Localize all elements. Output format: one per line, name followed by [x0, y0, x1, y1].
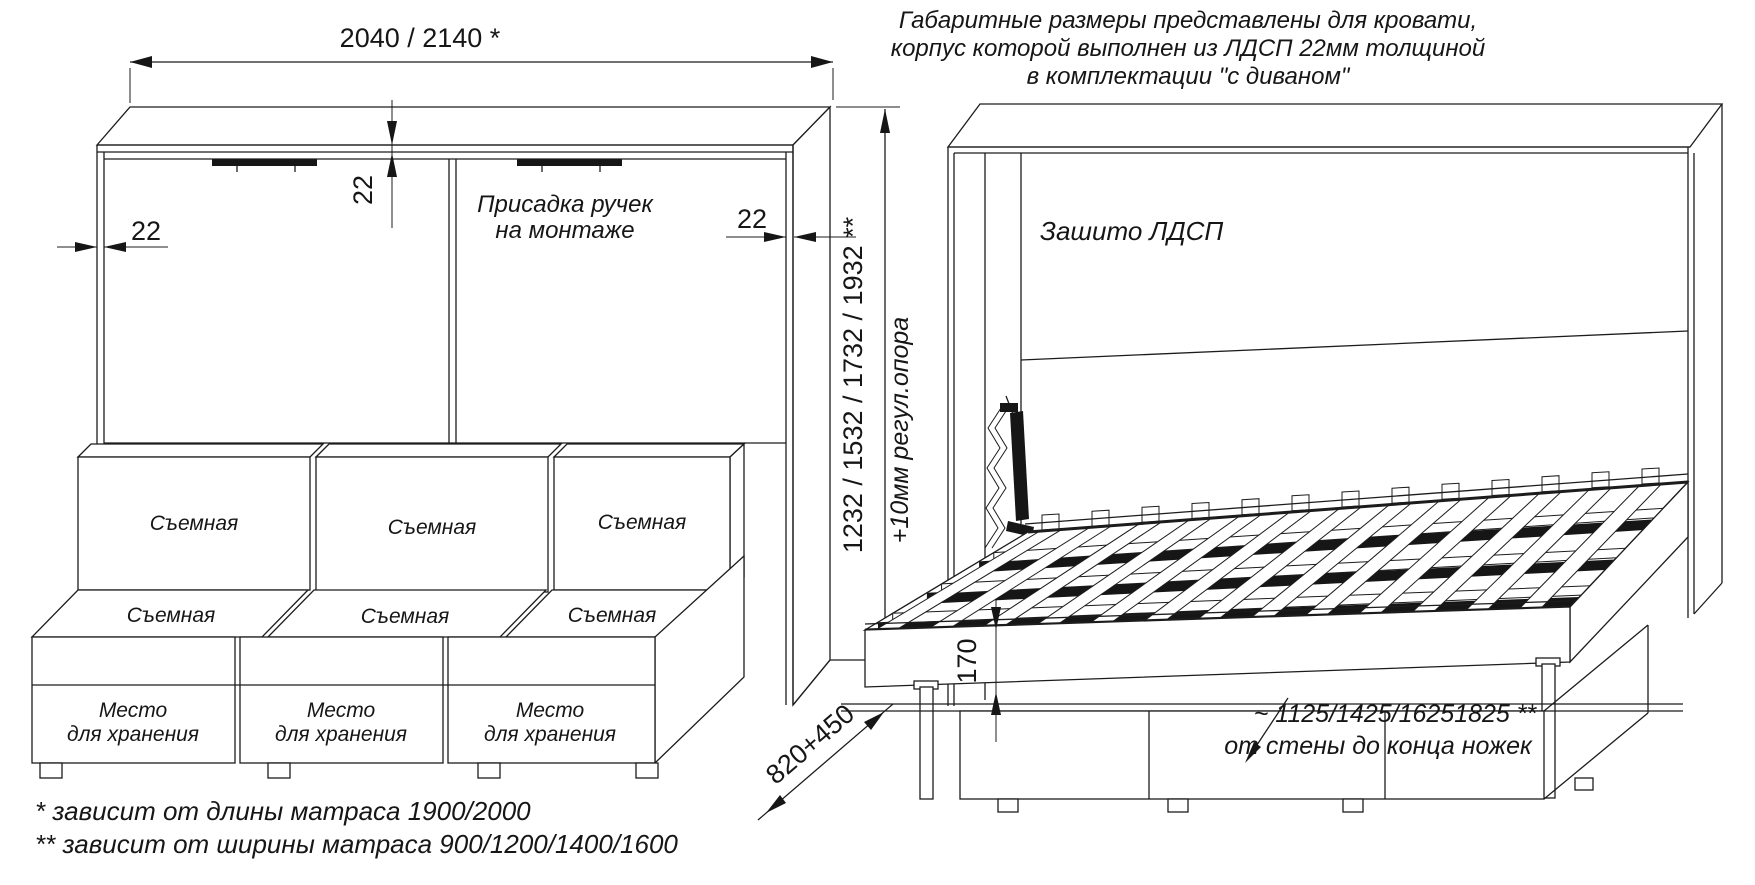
technical-drawing-canvas: Съемная Съемная Съемная Съемная Съемная … — [0, 0, 1755, 885]
storage-label-line1: Место — [307, 699, 376, 722]
sofa-foot — [636, 763, 658, 778]
depth-dimension-label: 820+450 — [760, 698, 860, 790]
closed-bed-sofa-view: Съемная Съемная Съемная Съемная Съемная … — [32, 23, 914, 820]
sofa-foot — [268, 763, 290, 778]
storage-label-line1: Место — [516, 699, 585, 722]
open-bed-view: Зашито ЛДСП — [841, 7, 1722, 812]
thickness-label: 22 — [131, 216, 161, 246]
dim-arrow — [864, 712, 884, 730]
note-line3: в комплектации "с диваном" — [1027, 63, 1351, 90]
dim-arrow — [880, 109, 890, 133]
footnote-1: * зависит от длины матраса 1900/2000 — [35, 796, 531, 826]
base-foot — [1343, 799, 1363, 812]
gas-lift-top-mount — [1000, 403, 1018, 412]
depth-dimension: 820+450 — [758, 698, 893, 820]
dim-arrow — [104, 242, 126, 252]
gas-lift-mechanism — [985, 396, 1034, 548]
height-note-label: +10мм регул.опора — [886, 317, 914, 544]
sofa-seat-cushions: Съемная Съемная Съемная — [32, 590, 730, 637]
door-handle-left — [212, 159, 317, 166]
general-note: Габаритные размеры представлены для кров… — [891, 7, 1485, 90]
bed-platform — [865, 468, 1688, 687]
cabinet-right-side-face — [793, 107, 830, 705]
furniture-drawing-page: Съемная Съемная Съемная Съемная Съемная … — [0, 0, 1755, 885]
cushion-label: Съемная — [388, 516, 477, 539]
base-foot — [1168, 799, 1188, 812]
storage-label-line2: для хранения — [484, 723, 616, 746]
thickness-label: 22 — [348, 175, 378, 205]
right-panel-thickness-dimension: 22 — [726, 204, 856, 242]
storage-label-line2: для хранения — [275, 723, 407, 746]
cushion-label: Съемная — [361, 605, 450, 628]
cushion-label: Съемная — [598, 511, 687, 534]
back-panel-joint-line — [1021, 331, 1688, 360]
base-foot — [1575, 778, 1593, 790]
storage-label-line1: Место — [99, 699, 168, 722]
dim-arrow — [387, 153, 397, 177]
sofa-foot — [478, 763, 500, 778]
cushion-label: Съемная — [150, 512, 239, 535]
note-line1: Габаритные размеры представлены для кров… — [899, 7, 1477, 34]
base-height-label: 170 — [952, 638, 982, 683]
legs-dim-label: ~ 1125/1425/16251825 ** — [1254, 700, 1538, 728]
cushion-label: Съемная — [127, 604, 216, 627]
dim-arrow — [811, 56, 833, 68]
handle-note-line2: на монтаже — [495, 217, 634, 244]
height-dimension: 1232 / 1532 / 1732 / 1932 ** +10мм регул… — [836, 107, 914, 658]
open-cabinet-top-face — [948, 104, 1722, 147]
cabinet-top-face — [97, 107, 830, 145]
cushion-label: Съемная — [568, 604, 657, 627]
handle-note-line1: Присадка ручек — [477, 191, 654, 218]
width-dimension: 2040 / 2140 * — [130, 23, 833, 103]
footnote-2: ** зависит от ширины матраса 900/1200/14… — [35, 829, 678, 859]
left-panel-thickness-dimension: 22 — [57, 216, 168, 252]
height-dimension-label: 1232 / 1532 / 1732 / 1932 ** — [838, 216, 868, 553]
sofa-foot — [40, 763, 62, 778]
gas-lift-cylinder — [1010, 411, 1029, 521]
dim-arrow — [764, 232, 786, 242]
dim-arrow — [75, 242, 97, 252]
storage-label-line2: для хранения — [67, 723, 199, 746]
legs-dim-note-label: от стены до конца ножек — [1224, 732, 1533, 760]
width-dimension-label: 2040 / 2140 * — [340, 23, 501, 53]
door-handle-right — [517, 159, 622, 166]
footnotes: * зависит от длины матраса 1900/2000 ** … — [35, 796, 678, 859]
sofa-back-cushions: Съемная Съемная Съемная — [78, 444, 744, 592]
note-line2: корпус которой выполнен из ЛДСП 22мм тол… — [891, 35, 1485, 62]
dim-arrow — [130, 56, 152, 68]
thickness-label: 22 — [737, 204, 767, 234]
base-foot — [998, 799, 1018, 812]
back-panel-label: Зашито ЛДСП — [1040, 216, 1223, 246]
